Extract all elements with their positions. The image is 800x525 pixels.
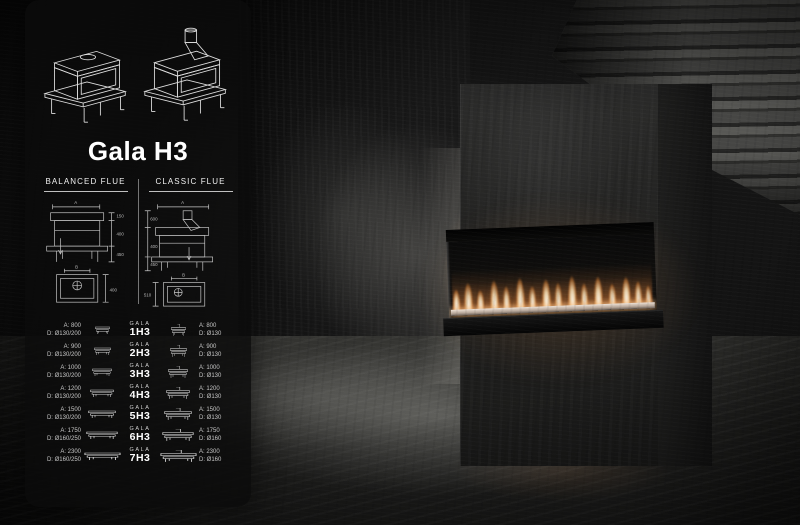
svg-text:400: 400 [109, 287, 117, 292]
balanced-dimensions: A: 800D: Ø130/200 [33, 323, 83, 339]
balanced-flue-icon [94, 347, 111, 356]
balanced-dimensions: A: 1750D: Ø160/250 [33, 428, 83, 444]
classic-dimensions: A: 800D: Ø130 [197, 323, 243, 339]
balanced-flue-diagram: A 150 400 450 B 400 [36, 198, 136, 312]
balanced-flue-icon [90, 389, 114, 398]
classic-flue-diagram: A 600 400 450 B 510 [141, 198, 241, 312]
balanced-dimensions: A: 1200D: Ø130/200 [33, 386, 83, 402]
classic-flue-icon [160, 450, 197, 463]
classic-flue-icon [170, 345, 187, 358]
svg-text:400: 400 [116, 231, 124, 236]
classic-flue-icon [164, 408, 192, 421]
model-table: A: 800D: Ø130/200 GALA1H3 A: 800D: Ø130 … [33, 320, 243, 467]
product-illustrations [33, 26, 243, 130]
fireplace-pillar-side [658, 84, 712, 466]
classic-dimensions: A: 1200D: Ø130 [197, 386, 243, 402]
concrete-ceiling [552, 0, 800, 215]
svg-text:A: A [181, 200, 184, 205]
balanced-flue-header: BALANCED FLUE [33, 177, 138, 192]
balanced-flue-icon [84, 452, 121, 461]
three-sided-gas-fireplace [446, 222, 658, 350]
model-name: GALA4H3 [121, 385, 159, 402]
classic-dimensions: A: 900D: Ø130 [197, 344, 243, 360]
model-row: A: 2300D: Ø160/250 GALA7H3 A: 2300D: Ø16… [33, 446, 243, 467]
balanced-dimensions: A: 1500D: Ø130/200 [33, 407, 83, 423]
classic-dimensions: A: 1000D: Ø130 [197, 365, 243, 381]
classic-flue-icon [171, 324, 186, 337]
model-row: A: 900D: Ø130/200 GALA2H3 A: 900D: Ø130 [33, 341, 243, 362]
spec-section: BALANCED FLUE CLASSIC FLUE [33, 177, 243, 312]
balanced-dimensions: A: 2300D: Ø160/250 [33, 449, 83, 465]
balanced-dimensions: A: 900D: Ø130/200 [33, 344, 83, 360]
svg-text:600: 600 [150, 217, 158, 222]
classic-dimensions: A: 1500D: Ø130 [197, 407, 243, 423]
classic-flue-header: CLASSIC FLUE [138, 177, 243, 192]
product-title: Gala H3 [33, 136, 243, 167]
model-row: A: 800D: Ø130/200 GALA1H3 A: 800D: Ø130 [33, 320, 243, 341]
scene: Gala H3 BALANCED FLUE CLASSIC FLUE [0, 0, 800, 525]
balanced-flue-icon [95, 326, 110, 335]
model-name: GALA2H3 [121, 343, 159, 360]
svg-text:150: 150 [116, 214, 124, 219]
balanced-flue-icon [86, 431, 118, 440]
model-row: A: 1200D: Ø130/200 GALA4H3 A: 1200D: Ø13… [33, 383, 243, 404]
svg-text:A: A [74, 200, 77, 205]
model-name: GALA6H3 [121, 427, 159, 444]
flames [451, 247, 653, 311]
model-name: GALA7H3 [121, 448, 159, 465]
svg-text:450: 450 [150, 262, 158, 267]
svg-text:B: B [75, 265, 78, 270]
svg-text:450: 450 [116, 252, 124, 257]
classic-flue-icon [168, 366, 188, 379]
svg-text:B: B [182, 273, 185, 278]
concrete-back-wall [238, 0, 470, 352]
svg-text:400: 400 [150, 244, 158, 249]
balanced-flue-icon [88, 410, 116, 419]
classic-flue-icon [162, 429, 194, 442]
flue-type-headers: BALANCED FLUE CLASSIC FLUE [33, 177, 243, 192]
classic-flue-icon [166, 387, 190, 400]
firebox-glass [446, 234, 657, 318]
model-row: A: 1000D: Ø130/200 GALA3H3 A: 1000D: Ø13… [33, 362, 243, 383]
balanced-dimensions: A: 1000D: Ø130/200 [33, 365, 83, 381]
model-name: GALA5H3 [121, 406, 159, 423]
spec-panel: Gala H3 BALANCED FLUE CLASSIC FLUE [25, 0, 251, 507]
balanced-flue-illustration [43, 34, 131, 130]
model-row: A: 1500D: Ø130/200 GALA5H3 A: 1500D: Ø13… [33, 404, 243, 425]
classic-flue-illustration [141, 26, 233, 130]
technical-diagrams: A 150 400 450 B 400 [33, 198, 243, 312]
classic-dimensions: A: 1750D: Ø160 [197, 428, 243, 444]
model-name: GALA1H3 [121, 322, 159, 339]
classic-dimensions: A: 2300D: Ø160 [197, 449, 243, 465]
model-name: GALA3H3 [121, 364, 159, 381]
model-row: A: 1750D: Ø160/250 GALA6H3 A: 1750D: Ø16… [33, 425, 243, 446]
balanced-flue-icon [92, 368, 112, 377]
svg-text:510: 510 [143, 292, 151, 297]
